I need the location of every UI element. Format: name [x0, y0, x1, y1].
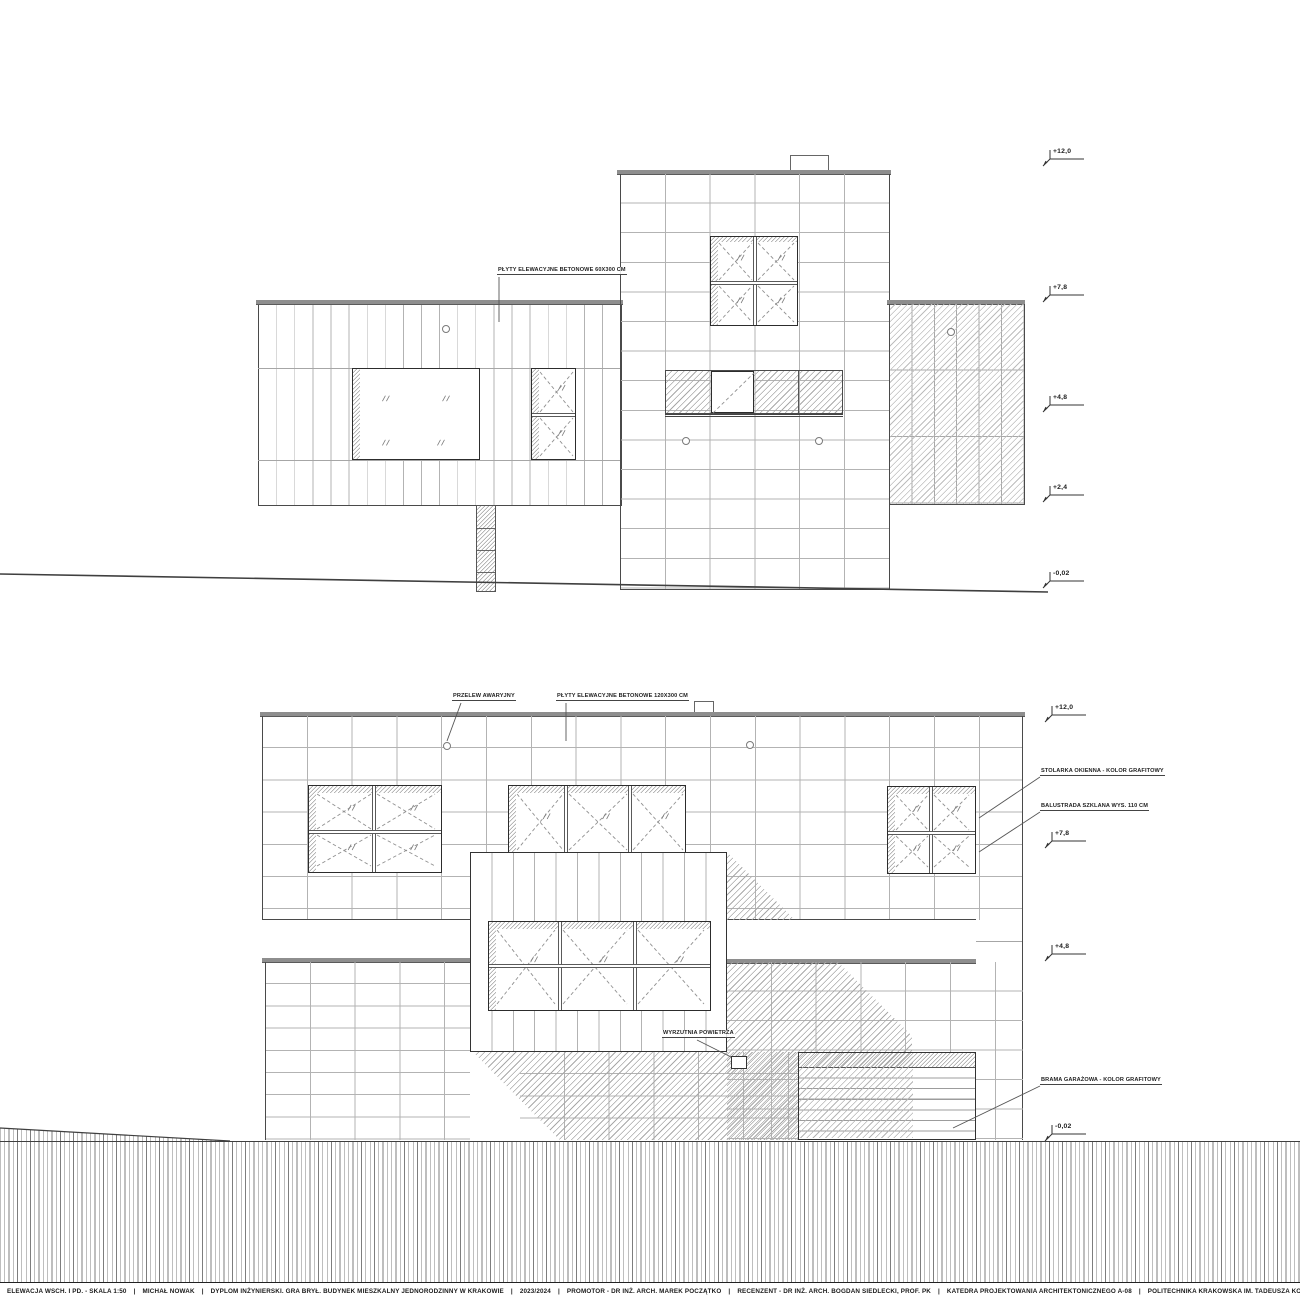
window-reveal-hatch — [353, 369, 360, 459]
level-label: +7,8 — [1055, 830, 1069, 837]
terrain-grass — [0, 1141, 1300, 1282]
title-bar: ELEWACJA WSCH. I PD. - SKALA 1:50 | MICH… — [0, 1282, 1300, 1300]
window-pane — [718, 242, 753, 281]
window-reveal-hatch — [509, 786, 685, 793]
pillar-joint — [477, 550, 495, 551]
pillar-joint — [477, 528, 495, 529]
overflow-outlet — [815, 437, 823, 445]
pane-symbols-icon — [632, 793, 684, 851]
pane-symbols-icon — [718, 242, 753, 281]
title-bar-separator: | — [938, 1288, 940, 1295]
annotation-label: BRAMA GARAŻOWA - KOLOR GRAFITOWY — [1040, 1077, 1162, 1085]
pane-symbols-icon — [316, 793, 372, 830]
pane-symbols-icon — [712, 372, 755, 414]
overflow-outlet — [947, 328, 955, 336]
pane-symbols-icon — [353, 369, 481, 461]
window-pane — [316, 793, 372, 830]
level-label: +4,8 — [1053, 394, 1067, 401]
title-bar-separator: | — [1139, 1288, 1141, 1295]
tower-chimney — [790, 155, 829, 170]
window-transom — [309, 830, 441, 834]
title-bar-item: 2023/2024 — [520, 1288, 551, 1295]
window-transom — [489, 964, 710, 968]
level-label: -0,02 — [1055, 1123, 1072, 1130]
level-marker: +12,0 — [1040, 148, 1086, 168]
band-divider — [798, 371, 799, 413]
window-mullion — [564, 786, 568, 853]
left-wing-large-window — [352, 368, 480, 460]
title-bar-separator: | — [134, 1288, 136, 1295]
pane-symbols-icon — [539, 371, 574, 413]
recess-top-edge — [262, 919, 470, 920]
ground-line-east — [0, 574, 1048, 592]
title-bar-item: PROMOTOR - DR INŻ. ARCH. MAREK POCZĄTKO — [567, 1288, 722, 1295]
pane-symbols-icon — [376, 793, 436, 830]
level-label: +7,8 — [1053, 284, 1067, 291]
window-pane — [933, 794, 970, 831]
level-marker: +2,4 — [1040, 484, 1086, 504]
title-bar-item: RECENZENT - DR INŻ. ARCH. BOGDAN SIEDLEC… — [737, 1288, 931, 1295]
window-reveal-hatch — [888, 787, 895, 873]
tower-band — [665, 370, 843, 414]
level-label: +2,4 — [1053, 484, 1067, 491]
overflow-outlet — [746, 741, 754, 749]
window-pane — [376, 834, 436, 867]
window-pane — [516, 793, 564, 851]
title-bar-item: DYPLOM INŻYNIERSKI. GRA BRYŁ. BUDYNEK MI… — [211, 1288, 504, 1295]
level-marker: -0,02 — [1040, 570, 1086, 590]
overflow-outlet — [443, 742, 451, 750]
window-pane — [539, 417, 574, 457]
level-marker: +4,8 — [1040, 394, 1086, 414]
window-pane — [539, 371, 574, 413]
window-pane — [895, 794, 929, 831]
window-pane — [895, 835, 929, 868]
window-reveal-hatch — [489, 922, 710, 929]
right-strip-joint — [976, 941, 1023, 942]
level-label: +12,0 — [1055, 704, 1073, 711]
window-pane — [632, 793, 684, 851]
garage-door — [798, 1052, 976, 1140]
window-middle — [508, 785, 686, 853]
annotation-label: PŁYTY ELEWACYJNE BETONOWE 120X300 CM — [556, 693, 689, 701]
level-label: +12,0 — [1053, 148, 1071, 155]
window-mullion — [628, 786, 632, 853]
lower-left-wall — [265, 962, 470, 1140]
level-label: +4,8 — [1055, 943, 1069, 950]
pane-symbols-icon — [895, 835, 929, 868]
window-reveal-hatch — [509, 786, 516, 853]
tower-window — [710, 236, 798, 326]
pane-symbols-icon — [516, 793, 564, 851]
annotation-label: STOLARKA OKIENNA - KOLOR GRAFITOWY — [1040, 768, 1165, 776]
level-marker: +12,0 — [1042, 704, 1088, 724]
left-wing-joint-line — [258, 460, 620, 461]
title-bar-separator: | — [558, 1288, 560, 1295]
garage-door-shadow — [799, 1053, 913, 1138]
pane-symbols-icon — [539, 417, 574, 457]
title-bar-separator: | — [511, 1288, 513, 1295]
title-bar-item: KATEDRA PROJEKTOWANIA ARCHITEKTONICZNEGO… — [947, 1288, 1132, 1295]
overflow-outlet — [682, 437, 690, 445]
pane-symbols-icon — [718, 285, 753, 323]
chimney — [694, 701, 714, 712]
band-base-line — [665, 414, 843, 417]
window-pane — [718, 285, 753, 323]
pillar — [476, 505, 496, 592]
title-bar-item: ELEWACJA WSCH. I PD. - SKALA 1:50 — [7, 1288, 127, 1295]
terrain-grass-slope — [0, 1128, 230, 1141]
window-pane — [757, 242, 795, 281]
window-reveal-hatch — [309, 786, 316, 872]
pane-symbols-icon — [568, 793, 628, 851]
window-pane — [376, 793, 436, 830]
pane-symbols-icon — [933, 835, 970, 868]
pane-symbols-icon — [757, 242, 795, 281]
volume-window-band — [488, 921, 711, 1011]
level-marker: +4,8 — [1042, 943, 1088, 963]
overflow-outlet — [442, 325, 450, 333]
left-wing-small-window — [531, 368, 576, 460]
window-pane — [316, 834, 372, 867]
air-exhaust-box — [731, 1056, 747, 1069]
window-right — [887, 786, 976, 874]
window-left — [308, 785, 442, 873]
title-bar-separator: | — [728, 1288, 730, 1295]
pane-symbols-icon — [933, 794, 970, 831]
pillar-joint — [477, 572, 495, 573]
title-bar-separator: | — [202, 1288, 204, 1295]
level-label: -0,02 — [1053, 570, 1070, 577]
window-pane — [933, 835, 970, 868]
level-marker: +7,8 — [1042, 830, 1088, 850]
annotation-label: BALUSTRADA SZKLANA WYS. 110 CM — [1040, 803, 1149, 811]
pane-symbols-icon — [757, 285, 795, 323]
window-transom — [711, 281, 797, 285]
window-mullion — [929, 787, 933, 873]
title-bar-item: POLITECHNIKA KRAKOWSKA IM. TADEUSZA KOŚC… — [1148, 1288, 1300, 1295]
window-transom — [888, 831, 975, 835]
window-pane — [568, 793, 628, 851]
band-window — [711, 371, 754, 413]
level-marker: -0,02 — [1042, 1123, 1088, 1143]
right-wing-wall — [889, 304, 1025, 505]
drawing-canvas: +12,0 +7,8 +4,8 +2,4 -0,02 PŁYTY ELEWACY… — [0, 0, 1300, 1300]
pane-symbols-icon — [376, 834, 436, 867]
title-bar-item: MICHAŁ NOWAK — [143, 1288, 195, 1295]
protruding-volume — [470, 852, 727, 1052]
annotation-label: PŁYTY ELEWACYJNE BETONOWE 60X300 CM — [497, 267, 627, 275]
window-pane — [757, 285, 795, 323]
pane-symbols-icon — [895, 794, 929, 831]
annotation-label: PRZELEW AWARYJNY — [452, 693, 516, 701]
window-mullion — [372, 786, 376, 872]
annotation-label: WYRZUTNIA POWIETRZA — [662, 1030, 735, 1038]
pane-symbols-icon — [316, 834, 372, 867]
level-marker: +7,8 — [1040, 284, 1086, 304]
